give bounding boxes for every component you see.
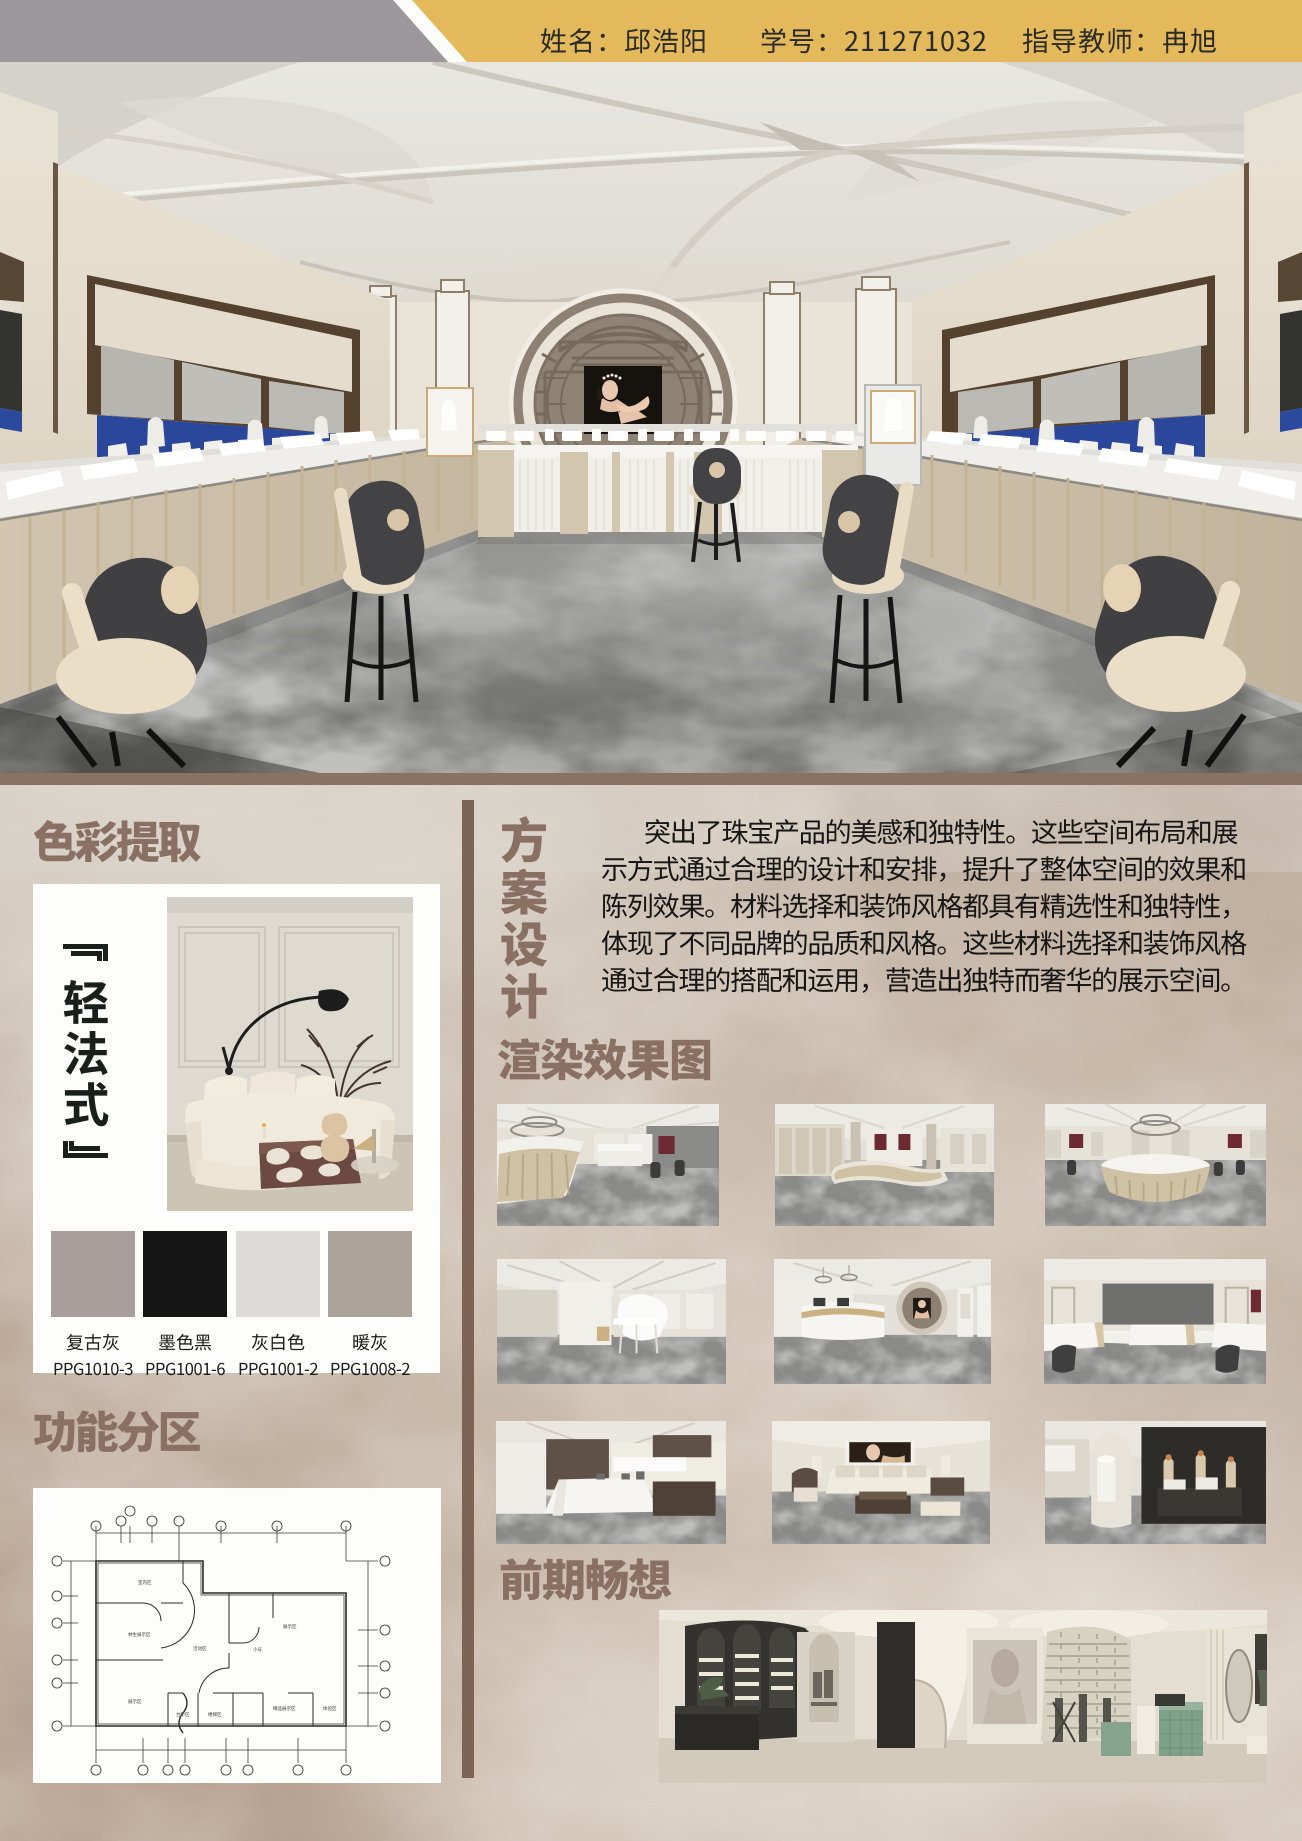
svg-text:活动区: 活动区	[193, 1645, 207, 1652]
svg-text:楼梯区: 楼梯区	[208, 1711, 222, 1718]
svg-text:体验区: 体验区	[323, 1705, 337, 1712]
svg-text:台阶区: 台阶区	[176, 1711, 190, 1718]
svg-text:室内区: 室内区	[138, 1579, 152, 1586]
svg-text:精品展示区: 精品展示区	[273, 1705, 296, 1712]
svg-text:林生展示区: 林生展示区	[128, 1631, 151, 1638]
svg-text:小号: 小号	[253, 1646, 262, 1653]
